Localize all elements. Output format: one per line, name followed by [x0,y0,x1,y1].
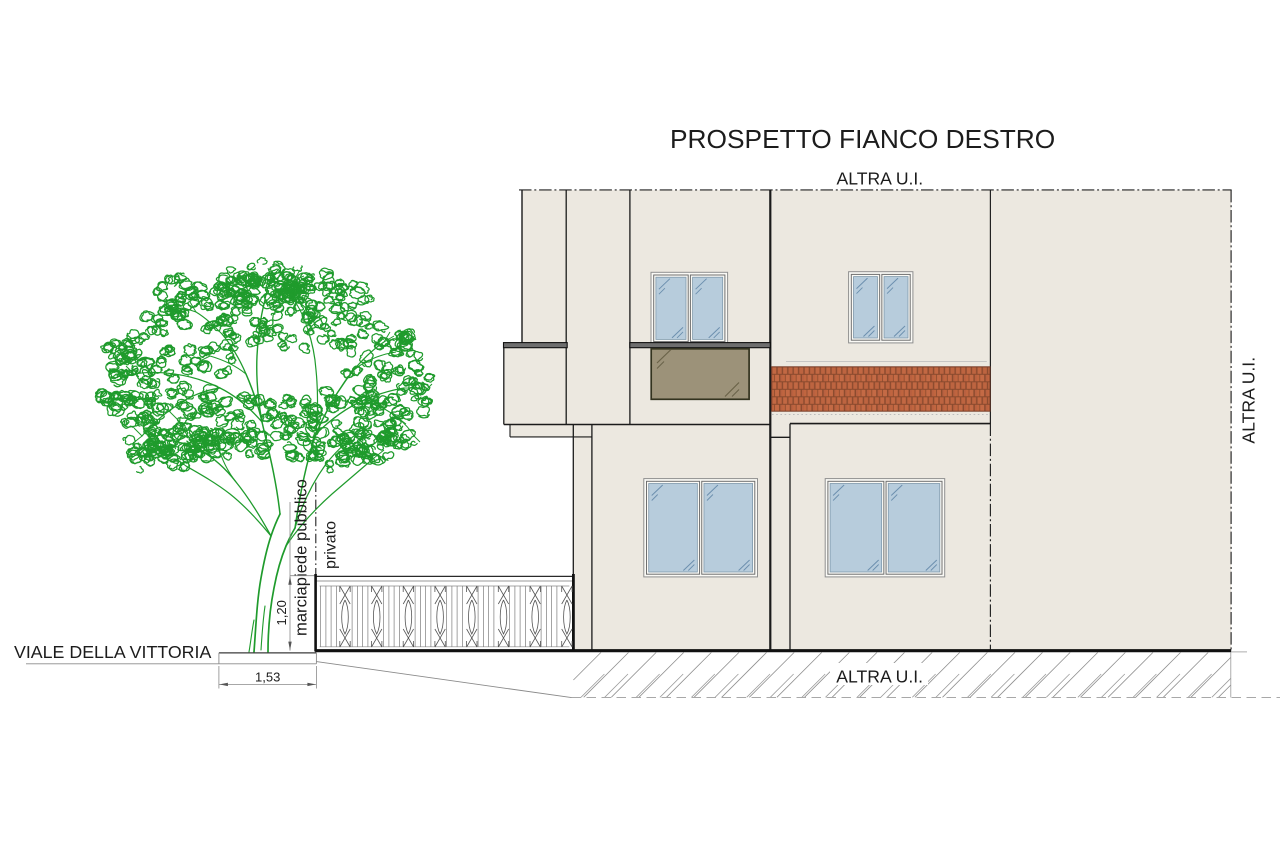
svg-text:marciapiede pubblico: marciapiede pubblico [292,479,311,636]
svg-text:ALTRA U.I.: ALTRA U.I. [837,168,924,188]
svg-text:privato: privato [323,521,340,569]
svg-text:PROSPETTO FIANCO DESTRO: PROSPETTO FIANCO DESTRO [670,124,1055,154]
svg-text:1,53: 1,53 [255,670,280,685]
svg-text:1,20: 1,20 [274,600,289,625]
svg-text:VIALE DELLA VITTORIA: VIALE DELLA VITTORIA [14,642,211,662]
svg-text:ALTRA U.I.: ALTRA U.I. [836,667,923,687]
svg-text:ALTRA U.I.: ALTRA U.I. [1239,357,1259,444]
